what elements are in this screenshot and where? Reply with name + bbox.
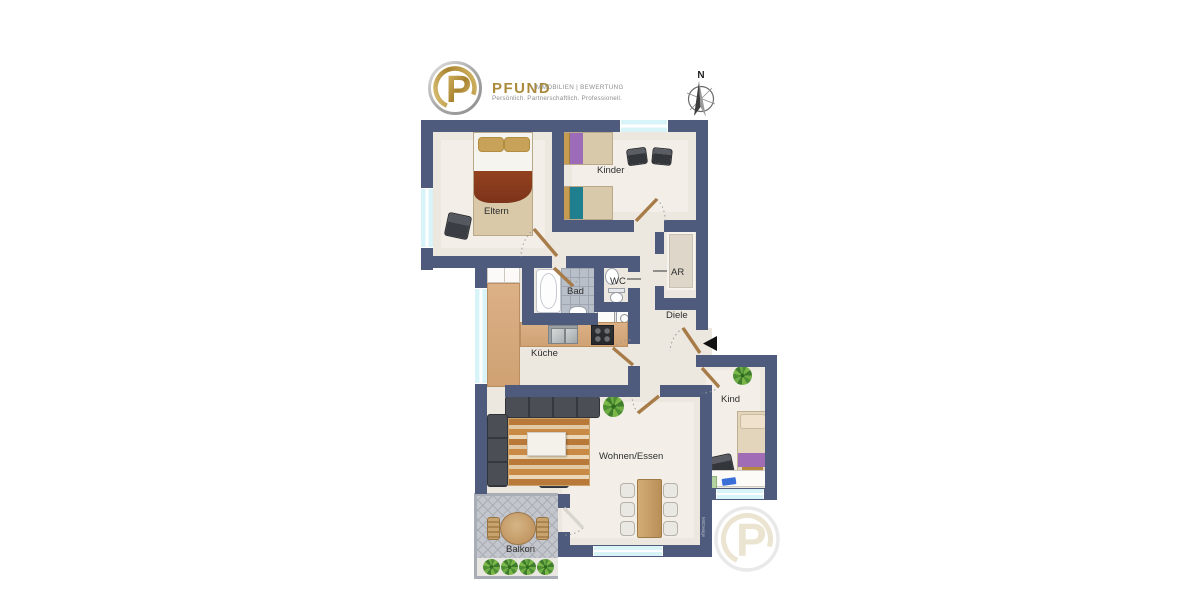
room-label-eltern: Eltern	[484, 206, 509, 217]
room-label-wc: WC	[610, 276, 626, 287]
door-leaf-entrance	[683, 328, 700, 353]
door-leaf-bad	[554, 268, 573, 286]
door-leaves	[534, 199, 719, 413]
room-label-kueche: Küche	[531, 348, 558, 359]
door-leaf-balkon	[564, 508, 583, 528]
door-leaf-kinder	[636, 199, 657, 221]
wall-watermark-text: MöDesign	[701, 517, 706, 537]
room-label-wohnen-essen: Wohnen/Essen	[599, 451, 663, 462]
room-label-bad: Bad	[567, 286, 584, 297]
room-label-ar: AR	[671, 267, 684, 278]
room-label-diele: Diele	[666, 310, 688, 321]
room-label-balkon: Balkon	[506, 544, 535, 555]
room-label-kinder: Kinder	[597, 165, 624, 176]
door-leaf-wohnen	[638, 396, 659, 413]
room-label-kind: Kind	[721, 394, 740, 405]
door-leaf-kind	[702, 368, 719, 387]
door-leaf-kueche	[613, 348, 633, 365]
floorplan-canvas: Eltern Kinder Bad WC AR Diele Küche Wohn…	[0, 0, 1200, 600]
entrance-arrow	[703, 336, 717, 351]
brand-tagline: Persönlich. Partnerschaftlich. Professio…	[492, 95, 622, 102]
door-leaf-eltern	[534, 229, 557, 256]
brand-division: IMMOBILIEN | BEWERTUNG	[534, 84, 624, 91]
